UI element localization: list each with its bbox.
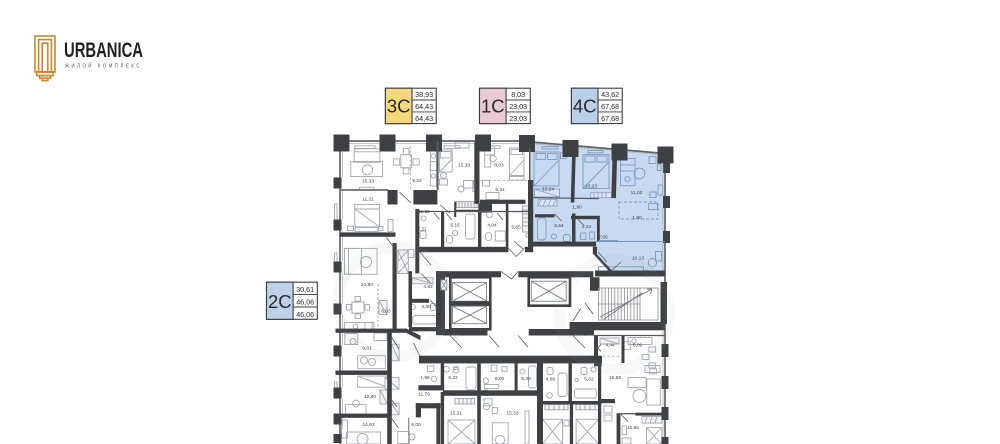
svg-text:9,22: 9,22	[412, 178, 422, 184]
svg-text:4,04: 4,04	[487, 223, 497, 229]
svg-text:15,33: 15,33	[506, 411, 518, 417]
svg-text:6,00: 6,00	[411, 422, 421, 428]
svg-text:4,95: 4,95	[546, 377, 556, 383]
svg-text:10,13: 10,13	[632, 256, 644, 262]
svg-text:2С: 2С	[268, 291, 292, 312]
svg-text:21,80: 21,80	[361, 282, 373, 288]
svg-text:15,33: 15,33	[362, 179, 374, 185]
svg-text:2,21: 2,21	[417, 227, 427, 233]
svg-text:6,03: 6,03	[381, 309, 391, 315]
svg-text:11,02: 11,02	[631, 190, 643, 196]
svg-text:11,21: 11,21	[362, 197, 374, 203]
svg-text:5,54: 5,54	[554, 223, 564, 229]
svg-text:23,03: 23,03	[509, 102, 527, 111]
svg-text:8,03: 8,03	[494, 163, 504, 169]
svg-text:5,31: 5,31	[495, 187, 505, 193]
svg-text:67,68: 67,68	[601, 114, 619, 123]
svg-text:4С: 4С	[573, 96, 597, 117]
svg-text:11,79: 11,79	[418, 392, 430, 398]
svg-text:URBANICA: URBANICA	[64, 39, 143, 62]
svg-text:9,01: 9,01	[362, 346, 372, 352]
svg-text:46,06: 46,06	[296, 310, 314, 319]
svg-text:10,80: 10,80	[627, 425, 639, 431]
svg-text:43,62: 43,62	[601, 90, 619, 99]
svg-text:64,43: 64,43	[415, 102, 433, 111]
svg-text:23,03: 23,03	[509, 114, 527, 123]
svg-text:12,39: 12,39	[458, 163, 470, 169]
svg-text:6,00: 6,00	[495, 376, 505, 382]
svg-text:4,60: 4,60	[421, 304, 431, 310]
svg-text:8,03: 8,03	[511, 90, 525, 99]
svg-text:2,24: 2,24	[582, 224, 592, 230]
svg-text:6,09: 6,09	[633, 343, 643, 349]
svg-text:5,22: 5,22	[448, 375, 458, 381]
svg-text:4,82: 4,82	[423, 284, 433, 290]
svg-text:1,90: 1,90	[572, 205, 582, 211]
svg-text:5,65: 5,65	[511, 225, 521, 231]
svg-text:14,93: 14,93	[362, 422, 374, 428]
svg-text:11,89: 11,89	[418, 209, 430, 215]
svg-text:12,40: 12,40	[364, 394, 376, 400]
svg-text:1,90: 1,90	[632, 215, 642, 221]
svg-text:64,43: 64,43	[415, 114, 433, 123]
svg-text:1,99: 1,99	[420, 375, 430, 381]
svg-text:30,61: 30,61	[296, 285, 314, 294]
svg-text:3С: 3С	[387, 96, 411, 117]
svg-text:12,31: 12,31	[450, 411, 462, 417]
svg-text:16,88: 16,88	[609, 375, 621, 381]
svg-text:12,24: 12,24	[542, 187, 554, 193]
svg-text:5,16: 5,16	[450, 223, 460, 229]
svg-text:4,44: 4,44	[605, 343, 615, 349]
svg-text:46,06: 46,06	[296, 297, 314, 306]
svg-text:ЖИЛОЙ КОМПЛЕКС: ЖИЛОЙ КОМПЛЕКС	[65, 62, 142, 70]
svg-text:7,06: 7,06	[598, 235, 608, 241]
svg-text:67,68: 67,68	[601, 102, 619, 111]
svg-text:38,93: 38,93	[415, 90, 433, 99]
svg-text:5,43: 5,43	[521, 376, 531, 382]
svg-text:5,02: 5,02	[584, 377, 594, 383]
svg-text:1С: 1С	[481, 96, 505, 117]
svg-text:10,23: 10,23	[585, 184, 597, 190]
